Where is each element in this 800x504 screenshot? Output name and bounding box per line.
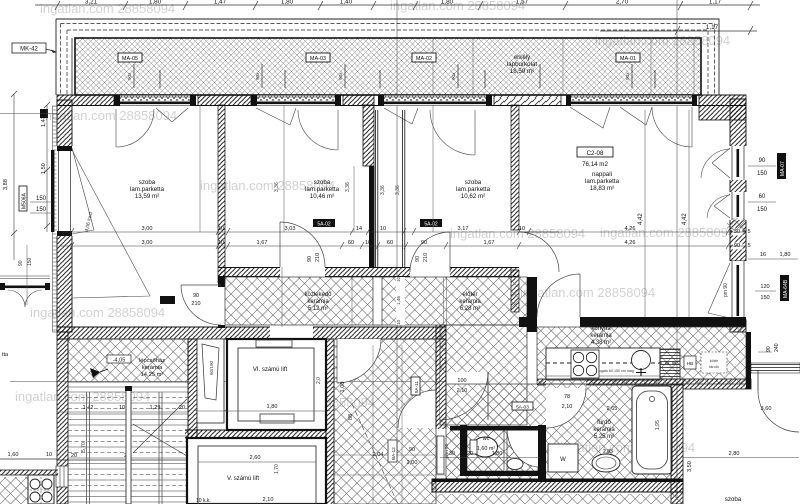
svg-text:210: 210 bbox=[423, 253, 429, 262]
svg-text:3,36: 3,36 bbox=[395, 185, 401, 195]
svg-text:ingatlan.com 28858094: ingatlan.com 28858094 bbox=[390, 0, 525, 13]
svg-text:10: 10 bbox=[46, 452, 52, 458]
svg-text:1,67: 1,67 bbox=[484, 240, 495, 246]
svg-text:90: 90 bbox=[193, 293, 199, 299]
svg-text:2,04: 2,04 bbox=[373, 452, 384, 458]
svg-text:10: 10 bbox=[218, 226, 224, 232]
svg-text:3,36: 3,36 bbox=[380, 185, 386, 195]
svg-text:pm 90: pm 90 bbox=[723, 283, 729, 297]
svg-text:20: 20 bbox=[467, 451, 473, 457]
svg-text:2,65: 2,65 bbox=[607, 406, 618, 412]
svg-text:MA-01: MA-01 bbox=[620, 56, 636, 62]
svg-text:90: 90 bbox=[766, 346, 772, 352]
svg-text:1,57: 1,57 bbox=[516, 0, 529, 6]
svg-text:90x: 90x bbox=[127, 72, 132, 80]
svg-text:5,70: 5,70 bbox=[81, 442, 87, 452]
svg-text:szoba: szoba bbox=[465, 179, 482, 186]
svg-text:5: 5 bbox=[747, 243, 750, 249]
svg-text:90: 90 bbox=[307, 256, 313, 262]
svg-text:90: 90 bbox=[18, 260, 24, 266]
svg-text:150: 150 bbox=[757, 207, 768, 213]
svg-text:2,00: 2,00 bbox=[407, 460, 418, 466]
svg-text:150: 150 bbox=[36, 207, 47, 213]
svg-text:90x: 90x bbox=[451, 72, 456, 80]
svg-text:kerámia: kerámia bbox=[307, 299, 329, 305]
svg-text:78: 78 bbox=[564, 394, 570, 400]
svg-text:10: 10 bbox=[396, 319, 401, 325]
svg-text:tároló: tároló bbox=[709, 365, 719, 369]
svg-text:1,47: 1,47 bbox=[41, 116, 47, 127]
svg-text:60: 60 bbox=[759, 194, 766, 200]
svg-text:2,80: 2,80 bbox=[729, 451, 740, 457]
svg-text:10: 10 bbox=[519, 226, 525, 232]
svg-text:1,40: 1,40 bbox=[340, 0, 353, 6]
svg-text:4,38 m²: 4,38 m² bbox=[591, 340, 611, 346]
svg-text:10,46 m²: 10,46 m² bbox=[310, 193, 334, 200]
svg-text:120: 120 bbox=[760, 284, 769, 290]
svg-text:kerámia: kerámia bbox=[590, 333, 612, 339]
svg-text:4,26: 4,26 bbox=[625, 240, 636, 246]
svg-text:2,60: 2,60 bbox=[250, 455, 261, 461]
svg-text:MA-02: MA-02 bbox=[416, 56, 432, 62]
svg-text:2,70: 2,70 bbox=[616, 0, 629, 6]
svg-text:4,42: 4,42 bbox=[638, 213, 644, 225]
svg-text:5,25 m²: 5,25 m² bbox=[594, 434, 614, 440]
svg-text:210: 210 bbox=[191, 301, 200, 307]
svg-text:18,83 m²: 18,83 m² bbox=[590, 185, 614, 192]
svg-text:lam.parketta: lam.parketta bbox=[585, 178, 620, 185]
svg-text:3,00: 3,00 bbox=[142, 226, 153, 232]
svg-text:3,21: 3,21 bbox=[85, 0, 98, 6]
svg-text:150: 150 bbox=[760, 295, 769, 301]
svg-text:60: 60 bbox=[348, 240, 354, 246]
svg-text:V. számú lift: V. számú lift bbox=[227, 476, 259, 482]
svg-text:1,47: 1,47 bbox=[214, 0, 227, 6]
svg-text:1,67: 1,67 bbox=[257, 240, 268, 246]
svg-text:90x: 90x bbox=[625, 72, 630, 80]
svg-text:20: 20 bbox=[71, 453, 77, 459]
svg-text:1,42: 1,42 bbox=[83, 405, 94, 411]
svg-text:2,83: 2,83 bbox=[603, 449, 613, 455]
svg-text:kerámia: kerámia bbox=[142, 365, 163, 371]
svg-text:150: 150 bbox=[27, 257, 33, 266]
svg-text:szoba: szoba bbox=[139, 179, 156, 186]
svg-text:M506A: M506A bbox=[22, 192, 28, 209]
svg-text:-4,05: -4,05 bbox=[113, 358, 126, 364]
svg-text:3,36: 3,36 bbox=[274, 182, 280, 192]
svg-text:szoba: szoba bbox=[725, 496, 742, 503]
svg-text:szoba: szoba bbox=[314, 179, 331, 186]
svg-text:1,80: 1,80 bbox=[441, 0, 454, 6]
svg-text:MK-42: MK-42 bbox=[20, 47, 38, 53]
svg-text:150: 150 bbox=[757, 171, 768, 177]
svg-text:1,70: 1,70 bbox=[274, 464, 280, 474]
svg-text:1,17: 1,17 bbox=[709, 0, 722, 6]
svg-text:100: 100 bbox=[457, 378, 466, 384]
svg-text:10: 10 bbox=[119, 405, 125, 411]
svg-text:60: 60 bbox=[387, 240, 393, 246]
svg-text:1,80: 1,80 bbox=[281, 0, 294, 6]
svg-text:lapburkolat: lapburkolat bbox=[507, 61, 538, 68]
svg-text:88: 88 bbox=[348, 414, 354, 420]
svg-text:3,36: 3,36 bbox=[345, 182, 351, 192]
svg-text:90x: 90x bbox=[255, 72, 260, 80]
svg-text:90: 90 bbox=[409, 447, 415, 453]
svg-text:6,28 m²: 6,28 m² bbox=[460, 306, 480, 312]
svg-text:kerámia: kerámia bbox=[593, 427, 615, 433]
svg-text:90: 90 bbox=[759, 158, 766, 164]
svg-text:3,00: 3,00 bbox=[142, 240, 153, 246]
svg-text:W: W bbox=[560, 457, 566, 463]
svg-text:60/190: 60/190 bbox=[209, 361, 214, 375]
svg-text:BA-12: BA-12 bbox=[391, 447, 396, 460]
svg-text:1,17: 1,17 bbox=[706, 24, 719, 31]
svg-text:1,50: 1,50 bbox=[41, 163, 47, 174]
svg-text:1,60: 1,60 bbox=[8, 452, 19, 458]
svg-text:MA-64B: MA-64B bbox=[783, 279, 789, 298]
svg-text:4,26: 4,26 bbox=[625, 226, 636, 232]
svg-text:nappali: nappali bbox=[592, 171, 612, 178]
svg-text:14,25 m²: 14,25 m² bbox=[141, 372, 164, 378]
svg-text:lam.parketta: lam.parketta bbox=[456, 186, 491, 193]
svg-text:3,50: 3,50 bbox=[687, 461, 693, 472]
svg-text:10,62 m²: 10,62 m² bbox=[461, 193, 485, 200]
svg-text:2,0: 2,0 bbox=[316, 377, 322, 384]
svg-text:16: 16 bbox=[760, 252, 766, 258]
svg-text:1,80: 1,80 bbox=[267, 404, 278, 410]
svg-text:ingatlan.com 28858094: ingatlan.com 28858094 bbox=[520, 285, 655, 300]
svg-text:90x: 90x bbox=[338, 72, 343, 80]
svg-text:1,80: 1,80 bbox=[780, 252, 791, 258]
svg-text:erkély: erkély bbox=[514, 54, 531, 61]
svg-text:1,80: 1,80 bbox=[149, 0, 162, 6]
svg-text:HB: HB bbox=[687, 361, 693, 366]
svg-text:körte: körte bbox=[710, 359, 718, 363]
svg-text:150: 150 bbox=[36, 196, 47, 202]
svg-text:5A-02: 5A-02 bbox=[317, 222, 331, 228]
svg-text:2,10: 2,10 bbox=[263, 497, 274, 503]
svg-text:10 k.k.: 10 k.k. bbox=[196, 498, 211, 504]
svg-text:konyha: konyha bbox=[591, 326, 611, 332]
svg-text:tta: tta bbox=[2, 352, 9, 358]
svg-text:lam.parketta: lam.parketta bbox=[130, 186, 165, 193]
svg-text:közlekedő: közlekedő bbox=[304, 292, 332, 298]
svg-text:C2-08: C2-08 bbox=[587, 150, 604, 157]
svg-text:lépcsőház: lépcsőház bbox=[139, 358, 165, 364]
svg-text:30: 30 bbox=[449, 451, 455, 457]
svg-text:90: 90 bbox=[734, 243, 740, 249]
svg-text:10: 10 bbox=[380, 226, 386, 232]
svg-text:wc: wc bbox=[482, 436, 490, 442]
svg-text:5A-02: 5A-02 bbox=[424, 222, 438, 228]
svg-text:5,12 m²: 5,12 m² bbox=[308, 306, 328, 312]
svg-text:2,10: 2,10 bbox=[562, 404, 573, 410]
svg-text:10: 10 bbox=[365, 240, 371, 246]
svg-text:1,95: 1,95 bbox=[655, 420, 661, 430]
svg-text:ingatlan.com 28858094: ingatlan.com 28858094 bbox=[600, 225, 735, 240]
svg-text:10: 10 bbox=[396, 276, 401, 282]
svg-text:4,42: 4,42 bbox=[682, 213, 688, 225]
svg-text:76,14 m2: 76,14 m2 bbox=[582, 161, 608, 168]
svg-text:3,03: 3,03 bbox=[285, 226, 296, 232]
svg-text:kerámia: kerámia bbox=[459, 299, 481, 305]
svg-text:VI. számú lift: VI. számú lift bbox=[253, 367, 288, 373]
svg-text:1,46: 1,46 bbox=[396, 296, 401, 305]
svg-text:fürdő: fürdő bbox=[597, 420, 611, 426]
svg-text:5A-11: 5A-11 bbox=[414, 381, 419, 393]
svg-text:MA-05: MA-05 bbox=[122, 56, 138, 62]
svg-text:1,00: 1,00 bbox=[340, 382, 346, 393]
svg-text:18,59 m²: 18,59 m² bbox=[510, 68, 534, 75]
svg-text:MA-03: MA-03 bbox=[310, 56, 326, 62]
svg-text:5A-03: 5A-03 bbox=[516, 405, 529, 411]
svg-text:210: 210 bbox=[315, 253, 321, 262]
svg-text:ingatlan.com 28858094: ingatlan.com 28858094 bbox=[30, 305, 165, 320]
svg-text:lam.parketta: lam.parketta bbox=[305, 186, 340, 193]
svg-text:3,17: 3,17 bbox=[458, 226, 469, 232]
svg-text:előtér: előtér bbox=[462, 292, 477, 298]
svg-text:13,59 m²: 13,59 m² bbox=[135, 193, 159, 200]
svg-text:5: 5 bbox=[747, 229, 750, 235]
svg-text:14: 14 bbox=[356, 226, 362, 232]
svg-text:90: 90 bbox=[415, 256, 421, 262]
svg-text:240: 240 bbox=[774, 343, 780, 352]
svg-text:1,80: 1,80 bbox=[492, 451, 503, 457]
svg-text:3,88: 3,88 bbox=[3, 179, 9, 190]
svg-text:MA-07: MA-07 bbox=[780, 161, 786, 176]
svg-text:10: 10 bbox=[218, 240, 224, 246]
svg-text:90: 90 bbox=[421, 240, 427, 246]
